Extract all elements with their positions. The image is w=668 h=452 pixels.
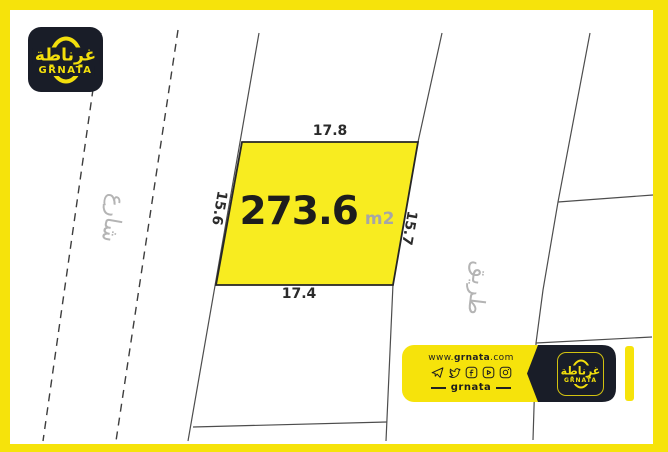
website-suffix: .com <box>490 353 514 363</box>
plot-dim-top: 17.8 <box>300 124 360 138</box>
handle-dash-left <box>431 387 446 389</box>
website-url: www.grnata.com <box>402 354 540 363</box>
social-icons-row <box>402 366 540 379</box>
plot-area-label: 273.6 m2 <box>228 192 406 238</box>
logo-latin-name: GRNATA <box>563 378 598 384</box>
youtube-icon <box>482 366 495 379</box>
instagram-icon <box>499 366 512 379</box>
plot-area-unit: m2 <box>365 211 395 228</box>
logo-arabic-name: غرناطة <box>32 48 99 65</box>
logo-latin-name: GRNATA <box>36 66 94 76</box>
logo-arabic-name: غرناطة <box>559 366 603 377</box>
handle-dash-right <box>496 387 511 389</box>
facebook-icon <box>465 366 478 379</box>
social-handle-row: grnata <box>402 383 540 393</box>
twitter-icon <box>448 366 461 379</box>
listing-flyer: 17.8 17.4 15.6 15.7 273.6 m2 شارع طريق غ… <box>0 0 668 452</box>
telegram-icon <box>431 366 444 379</box>
footer-grnata-logo: غرناطة GRNATA <box>557 352 604 396</box>
social-handle: grnata <box>451 383 492 393</box>
footer-accent-bar <box>625 346 634 401</box>
website-name: grnata <box>454 353 490 363</box>
website-prefix: www. <box>428 353 454 363</box>
plot-area-value: 273.6 <box>240 192 358 231</box>
grnata-logo: غرناطة GRNATA <box>28 27 103 92</box>
plot-dim-bottom: 17.4 <box>269 287 329 301</box>
footer-banner: www.grnata.com grna <box>402 345 636 402</box>
